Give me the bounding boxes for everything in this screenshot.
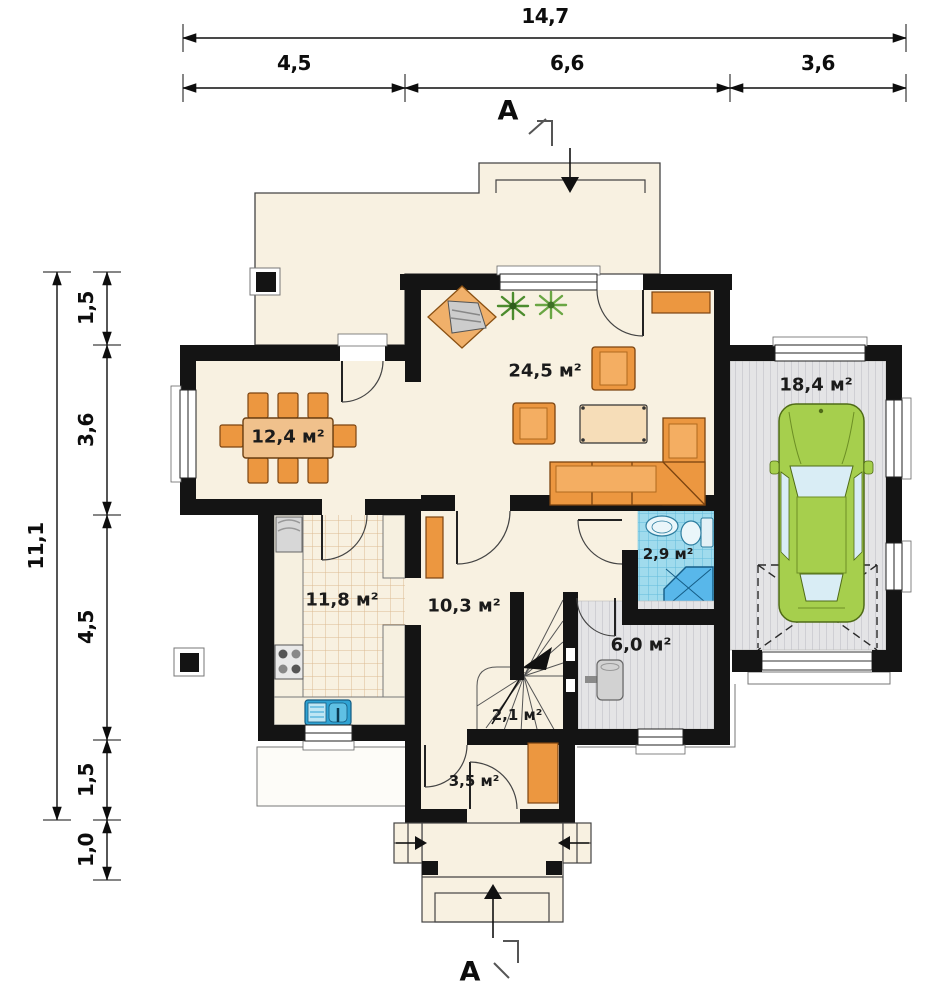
- dim-left-seg-3: 1,5: [74, 763, 98, 797]
- living-window: [500, 274, 597, 290]
- kitchen-counter-right-lower: [383, 625, 405, 697]
- dim-left-seg-1: 3,6: [74, 413, 98, 447]
- room-label-bathroom: 2,9 м²: [643, 545, 694, 563]
- plant-icon: [498, 293, 528, 319]
- dim-left-seg-2: 4,5: [74, 610, 98, 644]
- car: [770, 404, 873, 622]
- section-marker-top-label: A: [498, 96, 519, 127]
- kitchen-sink-icon: [305, 700, 351, 725]
- plant-icon: [536, 292, 566, 318]
- floor-plan-drawing: [0, 0, 951, 1000]
- bath-sink-icon: [646, 516, 678, 536]
- dining-window: [180, 390, 196, 478]
- room-label-stairs: 2,1 м²: [492, 706, 543, 724]
- garage-threshold: [748, 672, 890, 684]
- garage: [730, 361, 886, 670]
- room-label-dining: 12,4 м²: [251, 427, 324, 448]
- exterior-pillar: [174, 648, 204, 676]
- terrace-pillar: [256, 272, 276, 292]
- kitchen-window: [305, 725, 352, 741]
- room-label-garage: 18,4 м²: [779, 375, 852, 396]
- kitchen: [274, 515, 405, 725]
- dim-left-total: 11,1: [24, 522, 48, 569]
- room-label-entry: 3,5 м²: [449, 772, 500, 790]
- dim-top-total: 14,7: [521, 4, 568, 28]
- dim-left-seg-0: 1,5: [74, 291, 98, 325]
- room-label-utility: 6,0 м²: [611, 635, 672, 656]
- car-mirror-right: [864, 461, 873, 474]
- fridge-icon: [276, 517, 302, 552]
- dim-left-seg-4: 1,0: [74, 833, 98, 867]
- sideboard: [652, 292, 710, 313]
- coffee-table: [580, 405, 647, 443]
- entry-wardrobe: [528, 743, 558, 803]
- kitchen-counter-right-upper: [383, 515, 405, 578]
- garage-window-top: [775, 345, 865, 361]
- section-marker-top-icon: [529, 119, 552, 146]
- side-terrace: [257, 747, 421, 806]
- dim-top-seg-0: 4,5: [277, 51, 311, 75]
- dim-top-seg-2: 3,6: [801, 51, 835, 75]
- armchair: [592, 347, 635, 390]
- porch: [394, 823, 591, 938]
- hall-wardrobe: [426, 517, 443, 578]
- utility-window: [638, 729, 683, 745]
- room-label-hall: 10,3 м²: [427, 596, 500, 617]
- room-label-kitchen: 11,8 м²: [305, 590, 378, 611]
- room-label-living: 24,5 м²: [508, 361, 581, 382]
- section-marker-bottom-icon: [494, 941, 518, 978]
- stove-icon: [275, 645, 303, 679]
- armchair: [513, 403, 555, 444]
- dim-top-seg-1: 6,6: [550, 51, 584, 75]
- car-mirror-left: [770, 461, 779, 474]
- floor-plan-page: 14,7 4,5 6,6 3,6 11,1 1,5 3,6 4,5 1,5 1,…: [0, 0, 951, 1000]
- garage-window-right1: [886, 400, 902, 477]
- garage-door: [762, 652, 872, 670]
- garage-window-right2: [886, 543, 902, 590]
- section-marker-bottom-label: A: [460, 957, 481, 988]
